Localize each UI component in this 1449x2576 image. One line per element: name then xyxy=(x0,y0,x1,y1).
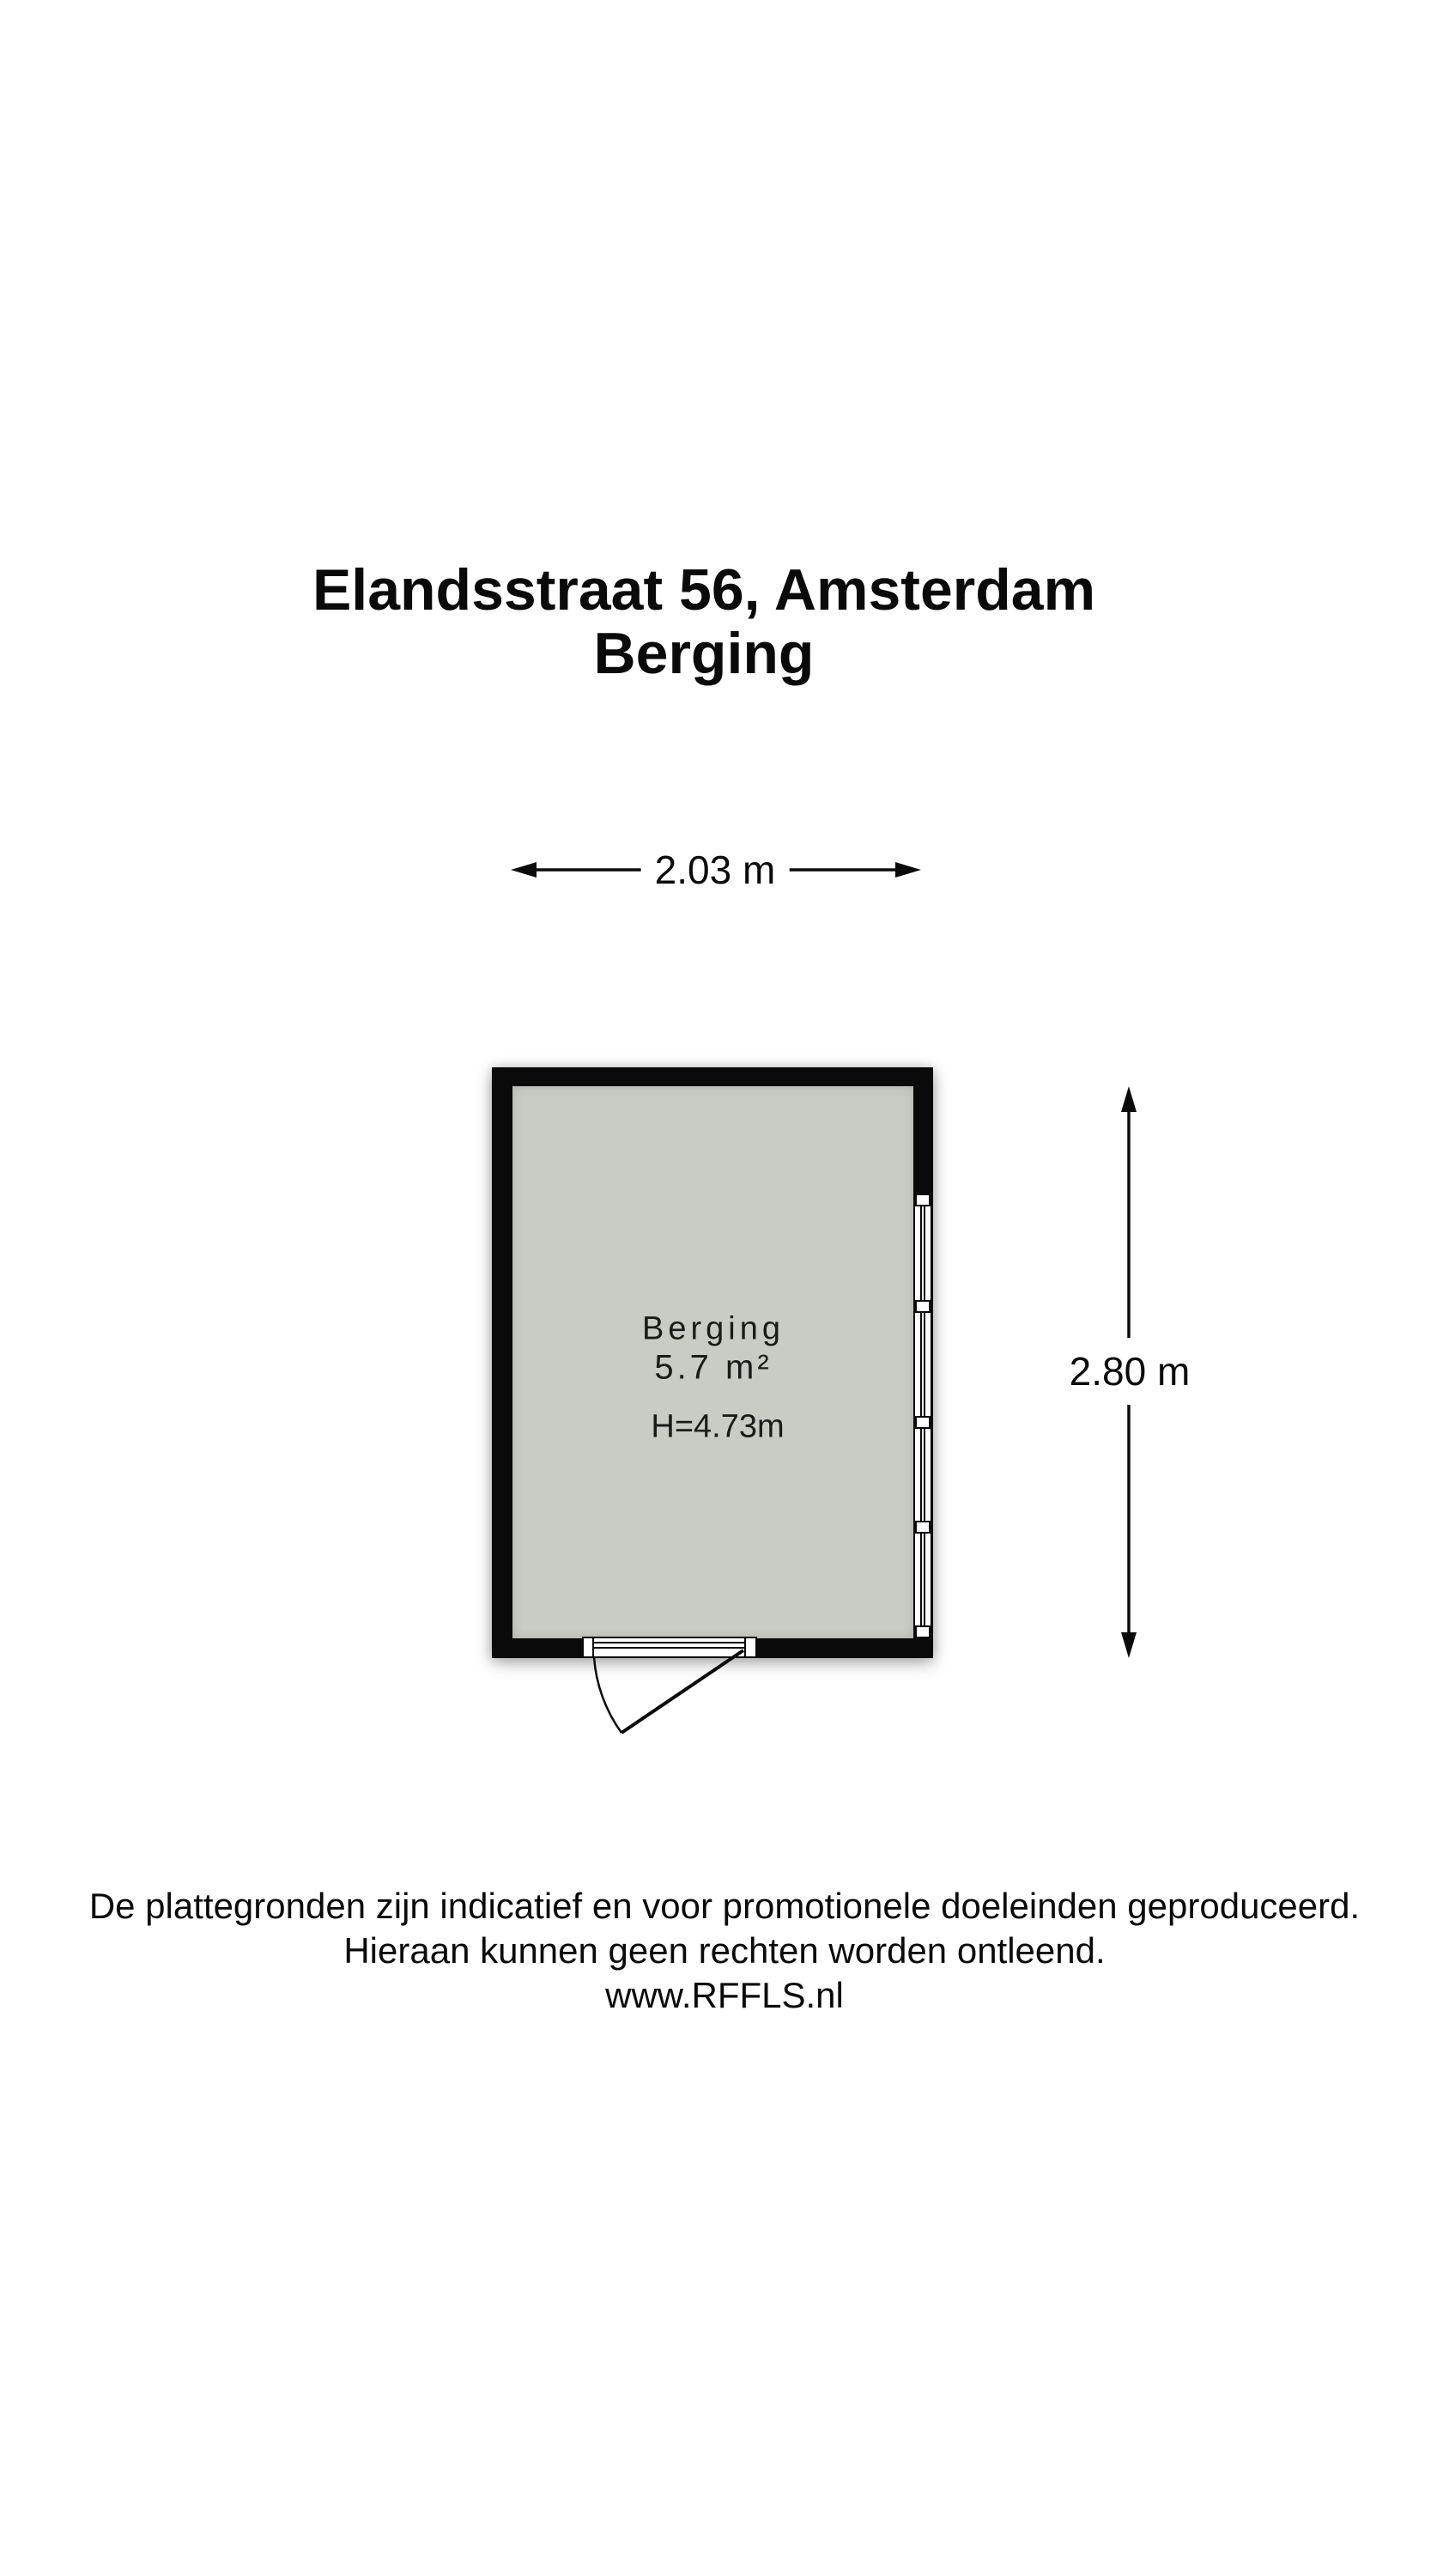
arrowhead-down-icon xyxy=(1121,1632,1137,1658)
arrowhead-up-icon xyxy=(1121,1086,1137,1112)
page-title-address: Elandsstraat 56, Amsterdam xyxy=(0,558,1408,622)
footer-website: www.RFFLS.nl xyxy=(0,1973,1449,2018)
page-title-room: Berging xyxy=(0,622,1408,685)
window-mullion xyxy=(915,1521,931,1534)
door-swing-arc xyxy=(594,1657,621,1733)
window-mullion xyxy=(915,1300,931,1313)
page-title: Elandsstraat 56, Amsterdam Berging xyxy=(0,558,1408,685)
window-frame-cap-top xyxy=(915,1194,931,1206)
footer-line-2: Hieraan kunnen geen rechten worden ontle… xyxy=(0,1929,1449,1973)
footer-line-1: De plattegronden zijn indicatief en voor… xyxy=(0,1884,1449,1929)
door-swing xyxy=(515,1623,790,1769)
width-dimension-label: 2.03 m xyxy=(641,845,790,895)
arrowhead-right-icon xyxy=(895,862,921,878)
floorplan-page: Elandsstraat 56, Amsterdam Berging 2.03 … xyxy=(0,0,1449,2576)
room-height-label: H=4.73m xyxy=(651,1409,784,1446)
room-name-label: Berging xyxy=(642,1311,785,1348)
room-area-label: 5.7 m² xyxy=(654,1349,772,1388)
arrowhead-left-icon xyxy=(511,862,537,878)
window-mullion xyxy=(915,1416,931,1429)
window xyxy=(913,1194,932,1638)
window-frame-cap-bottom xyxy=(915,1625,931,1638)
height-dimension-label: 2.80 m xyxy=(1063,1338,1197,1405)
footer-disclaimer: De plattegronden zijn indicatief en voor… xyxy=(0,1884,1449,2018)
door-leaf xyxy=(621,1650,743,1733)
